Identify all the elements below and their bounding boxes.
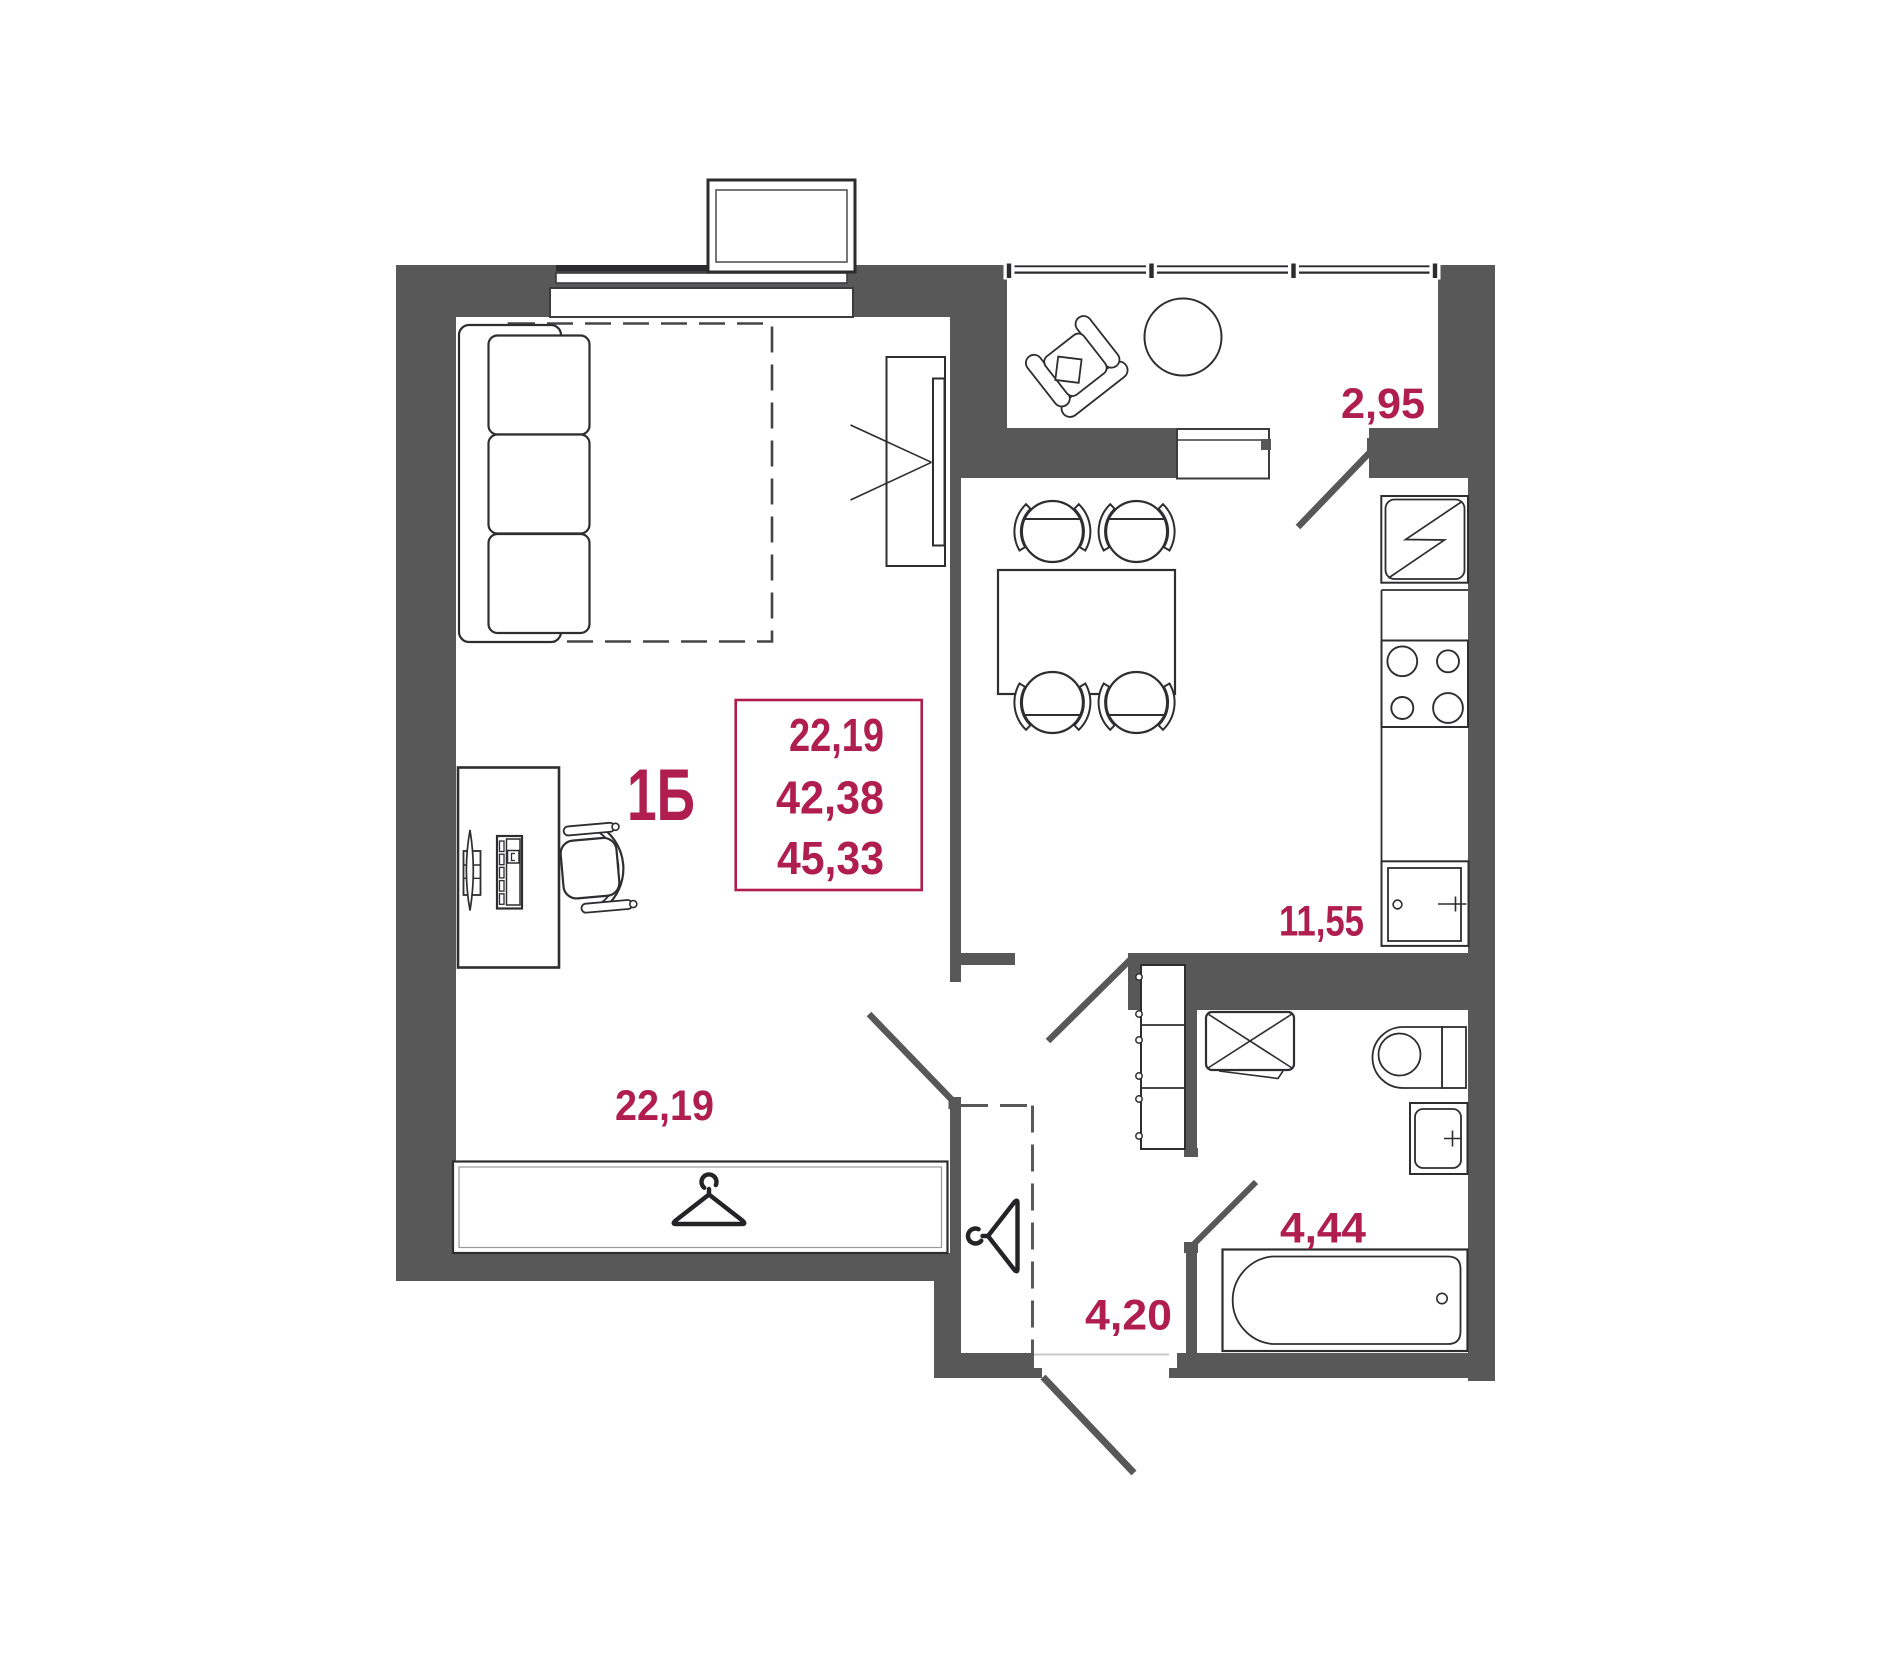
svg-text:22,19: 22,19 (615, 1083, 714, 1130)
svg-text:42,38: 42,38 (776, 772, 884, 824)
svg-text:1Б: 1Б (627, 755, 695, 836)
svg-text:22,19: 22,19 (789, 709, 884, 761)
svg-text:2,95: 2,95 (1341, 381, 1425, 428)
svg-text:4,44: 4,44 (1280, 1206, 1366, 1253)
svg-text:11,55: 11,55 (1279, 899, 1364, 946)
svg-text:4,20: 4,20 (1085, 1293, 1172, 1340)
svg-text:45,33: 45,33 (777, 832, 884, 884)
